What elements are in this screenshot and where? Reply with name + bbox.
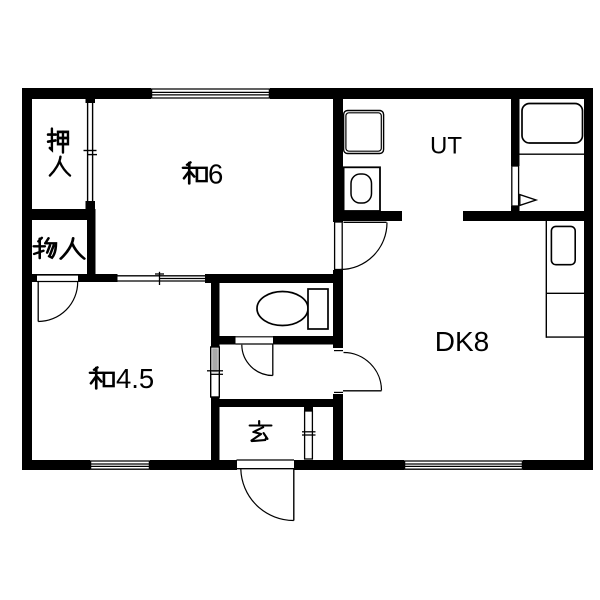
- svg-text:6: 6: [208, 159, 223, 190]
- svg-text:UT: UT: [430, 133, 462, 160]
- svg-text:DK8: DK8: [435, 326, 489, 357]
- svg-text:4.5: 4.5: [116, 363, 154, 394]
